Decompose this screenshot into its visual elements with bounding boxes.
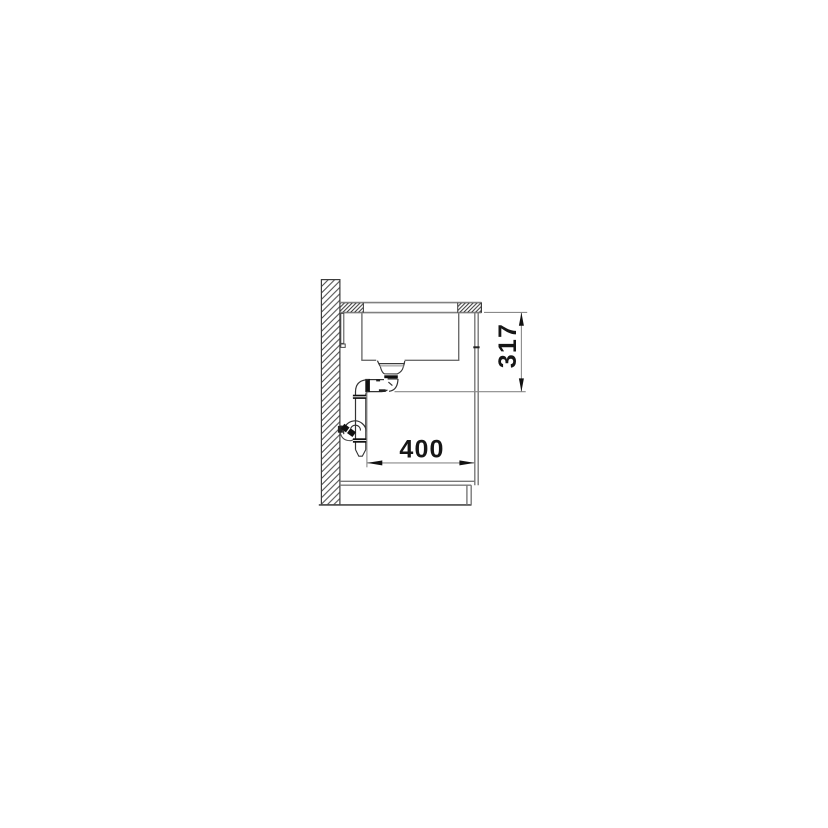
svg-text:400: 400 [399, 435, 444, 463]
svg-text:317: 317 [494, 323, 522, 368]
